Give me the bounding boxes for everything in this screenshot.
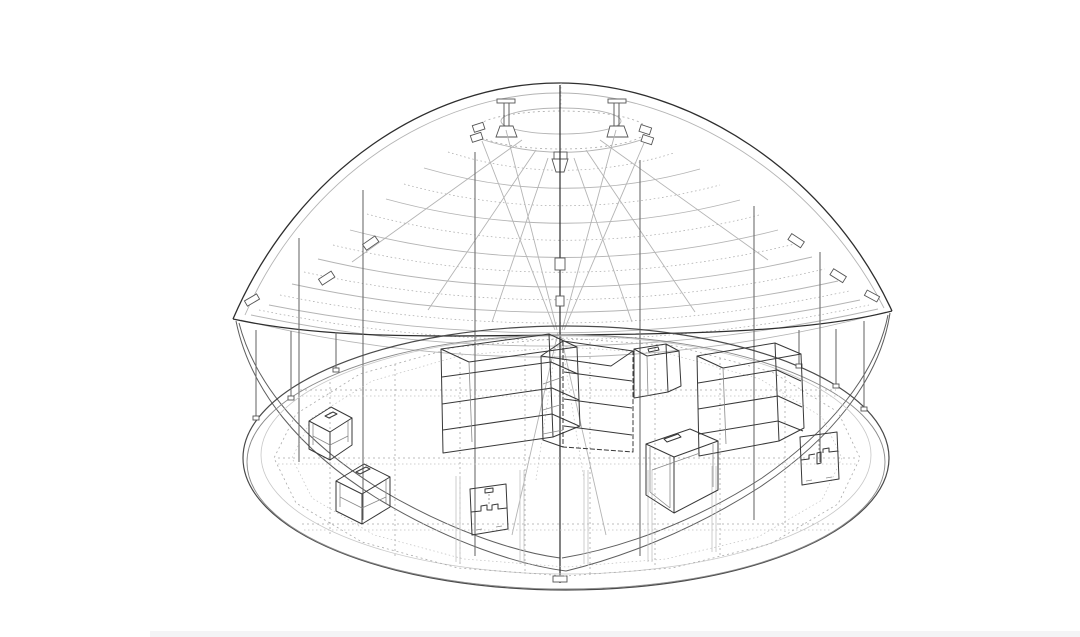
bottom-edge-strip	[150, 631, 1080, 637]
cascade-arc-left-inner	[239, 323, 560, 558]
mast-fitting	[556, 296, 564, 306]
floor-frame-polygon	[274, 338, 860, 576]
post-pad	[333, 368, 339, 372]
edge-plate	[244, 294, 259, 306]
shelf-rack-center	[541, 341, 633, 452]
edge-plate	[788, 234, 804, 248]
fine-arc	[367, 214, 759, 240]
floor-rim-mid	[247, 335, 885, 589]
radial-strut	[352, 140, 522, 262]
ring-fitting-right	[639, 125, 652, 135]
open-crate-large	[646, 429, 718, 513]
canopy-fine-arcs	[259, 152, 869, 340]
mast-foot	[553, 576, 567, 582]
flat-panel-front	[470, 484, 508, 535]
floor-frame-polygon-inner	[292, 347, 842, 567]
ring-fitting-left	[472, 122, 485, 132]
canopy	[233, 83, 892, 583]
lattice-arc	[350, 230, 778, 258]
canopy-lattice-arcs	[241, 93, 886, 357]
ring-fitting-right2	[641, 135, 654, 145]
cascade-arc-right	[566, 313, 890, 571]
post-pad	[253, 416, 259, 420]
edge-plate	[830, 269, 846, 283]
crate-stool-a	[309, 407, 352, 460]
cascade-arc-left	[236, 321, 566, 571]
canopy-inner-edge	[245, 93, 884, 315]
post-pad	[288, 396, 294, 400]
lattice-arc	[292, 281, 838, 312]
edge-plate	[318, 271, 334, 285]
canopy-outline-top	[233, 83, 892, 319]
lattice-arc	[386, 199, 740, 223]
floor-grid-horizontals	[278, 390, 856, 530]
canopy-rim-edge	[233, 311, 892, 336]
fine-arc	[280, 291, 849, 323]
fine-arc	[304, 269, 825, 300]
fine-arc	[404, 184, 720, 206]
radial-strut	[600, 140, 768, 260]
mast-fitting	[555, 258, 565, 270]
lattice-arc	[472, 136, 650, 152]
apex-ring-assembly	[470, 83, 653, 535]
shelf-rack-left	[441, 334, 580, 453]
wireframe-drawing	[0, 0, 1080, 637]
render-canvas	[0, 0, 1080, 637]
apex-ring-inner	[501, 108, 621, 134]
post-pad	[833, 384, 839, 388]
radial-strut	[574, 158, 632, 322]
floor-joist-pairs	[456, 466, 716, 564]
mast-capital-right	[607, 99, 628, 137]
ring-fitting-left2	[470, 132, 483, 142]
edge-plate	[864, 290, 879, 302]
post-pad	[861, 407, 867, 411]
canopy-masts	[299, 85, 820, 583]
